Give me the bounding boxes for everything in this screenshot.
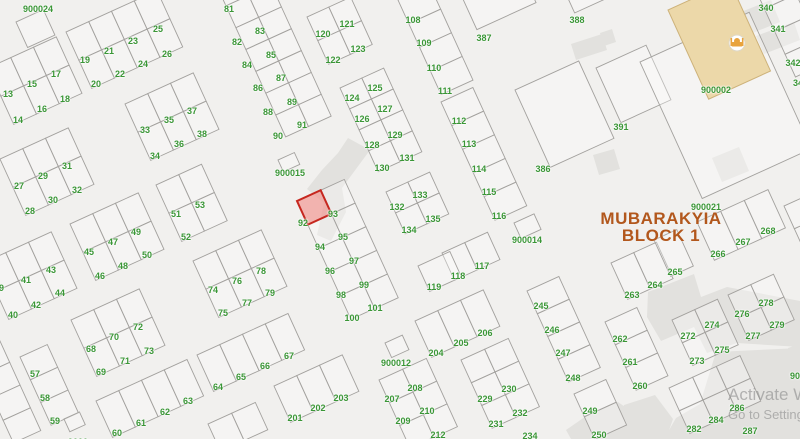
windows-activation-watermark: Activate W Go to Settings: [728, 385, 800, 422]
parcel-block: [274, 355, 359, 423]
road-building-shape: [593, 149, 620, 175]
parcel-block: [66, 0, 183, 88]
parcel-block: [379, 358, 457, 439]
parcel-block: [515, 61, 614, 167]
district-title-line1: MUBARAKYIA: [600, 210, 721, 227]
parcel-block: [0, 232, 77, 320]
parcel-block: [556, 0, 616, 13]
parcel-block: [415, 290, 500, 358]
parcel-block: [784, 194, 800, 252]
parcel-block: [307, 0, 372, 64]
parcel-block: [193, 230, 287, 318]
road-building-shape: [788, 344, 800, 379]
parcel-block: [156, 164, 227, 241]
parcel-block: [386, 172, 449, 234]
parcel-block: [452, 0, 536, 30]
district-title-line2: BLOCK 1: [600, 227, 721, 244]
parcel-block: [441, 87, 527, 220]
map-canvas[interactable]: 9000241315171416181921232520222426272931…: [0, 0, 800, 439]
parcel-block: [278, 153, 300, 172]
parcel-block: [0, 37, 82, 125]
road-building-shape: [619, 395, 673, 439]
parcel-block: [514, 214, 541, 239]
parcel-block: [527, 276, 600, 382]
parcel-block: [461, 338, 539, 428]
watermark-line2: Go to Settings: [728, 407, 800, 422]
parcel-block: [398, 0, 473, 95]
mosque-icon: [729, 35, 745, 51]
parcel-block: [96, 360, 204, 438]
parcel-block: [125, 73, 219, 161]
parcel-block: [70, 193, 164, 281]
parcel-block: [385, 335, 409, 357]
district-title: MUBARAKYIA BLOCK 1: [600, 210, 721, 244]
watermark-line1: Activate W: [728, 385, 800, 405]
parcel-block: [71, 289, 165, 377]
parcel-block: [208, 402, 268, 439]
parcel-block: [0, 128, 94, 216]
